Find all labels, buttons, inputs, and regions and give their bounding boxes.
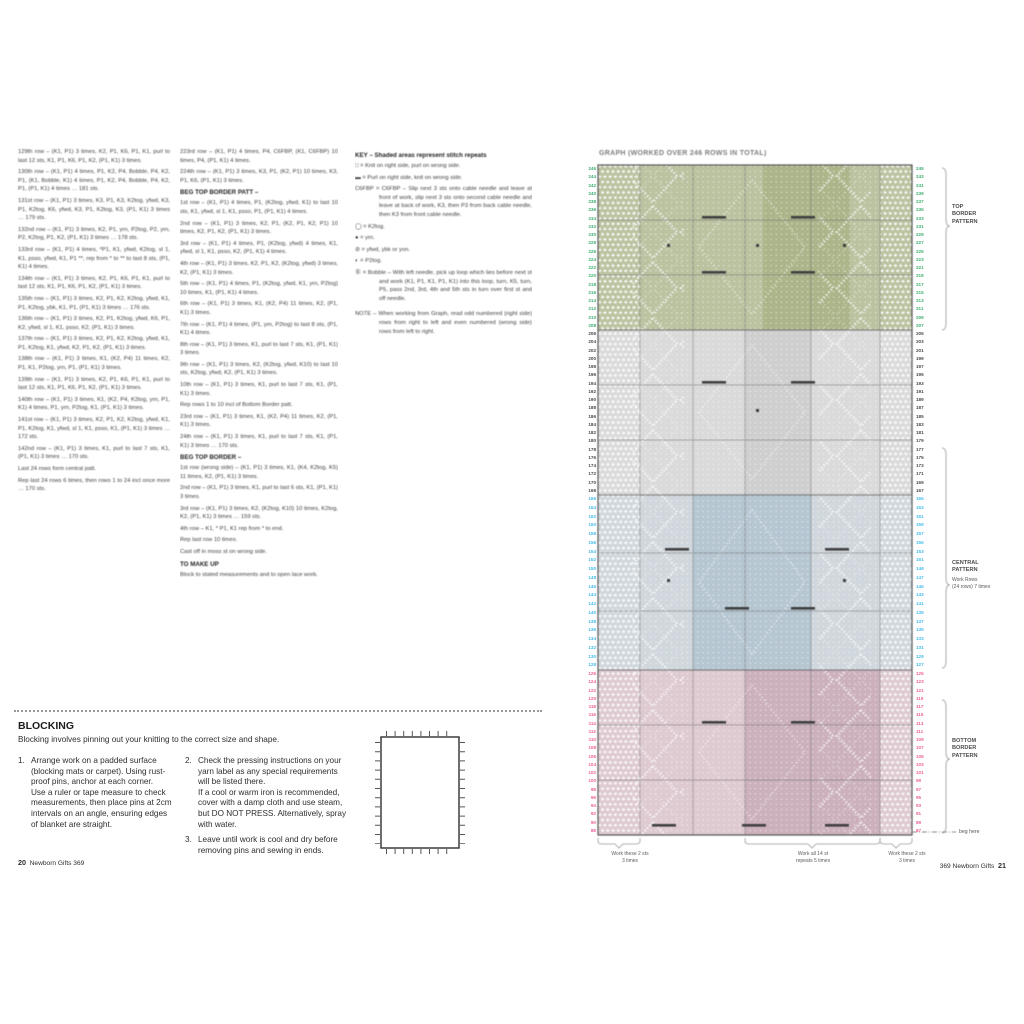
text-line: 140th row – (K1, P1) 3 times, K1, (K2, P… (18, 396, 170, 413)
column2-rows-group1: 1st row – (K1, P1) 4 times, P1, (K2tog, … (180, 199, 338, 450)
section-braces (942, 168, 950, 833)
text-line: 4th row – (K1, P1) 3 times, K2, P1, K2, … (180, 260, 338, 277)
text-line: 1st row – (K1, P1) 4 times, P1, (K2tog, … (180, 199, 338, 216)
blocking-step-3: 3. Leave until work is cool and dry befo… (185, 835, 348, 856)
heading-to-make-up: TO MAKE UP (180, 560, 338, 569)
step-text: Arrange work on a padded surface (blocki… (31, 756, 176, 830)
lattice-motif-right (819, 165, 871, 835)
brace-left-sts (598, 838, 640, 848)
text-line: ◐ = P2tog. (355, 257, 532, 266)
text-line: 224th row – (K1, P1) 3 times, K3, P1, (K… (180, 168, 338, 185)
step-number: 2. (185, 756, 198, 830)
text-line: ● = yrn. (355, 234, 532, 243)
label-bottom-border-pattern: BOTTOM BORDER PATTERN (952, 738, 1012, 760)
column2-rows-group2: 1st row (wrong side) – (K1, P1) 3 times,… (180, 464, 338, 556)
blocking-heading: BLOCKING (18, 720, 74, 732)
text-line: 137th row – (K1, P1) 3 times, K2, P1, K2… (18, 335, 170, 352)
step-number: 1. (18, 756, 31, 830)
row-numbers-left-central: 166 164 162 160 158 156 154 152 150 148 … (574, 495, 596, 670)
row-numbers-right-top: 245 243 241 239 237 235 233 231 229 227 … (916, 165, 940, 330)
step-text: Check the pressing instructions on your … (198, 756, 348, 830)
text-line: 3rd row – (K1, P1) 4 times, P1, (K2tog, … (180, 240, 338, 257)
text-line: Cast off in moss st on wrong side. (180, 548, 338, 557)
text-line: Ⓑ = Bobble – With left needle, pick up l… (355, 269, 532, 303)
brace-top-border (942, 168, 950, 330)
blocking-step-1: 1. Arrange work on a padded surface (blo… (18, 756, 176, 830)
brace-bottom-border (942, 700, 950, 833)
row-numbers-right-central: 165 163 161 159 157 155 153 151 149 147 … (916, 495, 940, 670)
text-line: 134th row – (K1, P1) 3 times, K2, P1, K6… (18, 275, 170, 292)
text-line: □ = Knit on right side, purl on wrong si… (355, 162, 532, 171)
book-title-left: Newborn Gifts 369 (30, 860, 85, 867)
text-line: 142nd row – (K1, P1) 3 times, K1, purl t… (18, 445, 170, 462)
footer-left: 20 Newborn Gifts 369 (18, 858, 84, 867)
text-line: 133rd row – (K1, P1) 4 times, *P1, K1, y… (18, 246, 170, 272)
heading-beg-top-border-patt: BEG TOP BORDER PATT – (180, 188, 338, 197)
blocking-diagram (372, 730, 468, 860)
text-line: 130th row – (K1, P1) 4 times, P1, K2, P4… (18, 168, 170, 194)
column2-pre-rows: 223rd row – (K1, P1) 4 times, P4, C6FBP,… (180, 148, 338, 185)
text-line: 8th row – (K1, P1) 3 times, K1, purl to … (180, 341, 338, 358)
text-line: ⊘ = yfwd, ybk or yon. (355, 246, 532, 255)
key-items: □ = Knit on right side, purl on wrong si… (355, 162, 532, 303)
text-line: 138th row – (K1, P1) 3 times, K1, (K2, P… (18, 355, 170, 372)
text-line: Rep last 24 rows 6 times, then rows 1 to… (18, 477, 170, 494)
text-line: 5th row – (K1, P1) 4 times, P1, (K2tog, … (180, 280, 338, 297)
dotted-divider (14, 710, 542, 712)
text-line: 131st row – (K1, P1) 3 times, K3, P1, K3… (18, 197, 170, 223)
text-line: 9th row – (K1, P1) 3 times, K2, (K2tog, … (180, 361, 338, 378)
knitting-chart (575, 148, 1024, 880)
text-line: 223rd row – (K1, P1) 4 times, P4, C6FBP,… (180, 148, 338, 165)
blocking-steps-left: 1. Arrange work on a padded surface (blo… (18, 756, 176, 835)
text-line: 6th row – (K1, P1) 3 times, K1, (K2, P4)… (180, 300, 338, 317)
row-numbers-left-bottom: 126 124 122 120 118 116 114 112 110 108 … (574, 670, 596, 835)
label-central-pattern-sub: Work Rows (24 rows) 7 times (952, 577, 1014, 590)
label-top-border-pattern: TOP BORDER PATTERN (952, 204, 1012, 226)
brace-centre-repeats (745, 838, 880, 848)
label-work-centre-repeats: Work all 14 st repeats 5 times (768, 851, 858, 864)
blocking-steps-right: 2. Check the pressing instructions on yo… (185, 756, 348, 861)
two-page-spread: 129th row – (K1, P1) 3 times, K2, P1, K6… (0, 0, 1024, 1024)
text-line: Last 24 rows form central patt. (18, 465, 170, 474)
label-central-pattern: CENTRAL PATTERN (952, 560, 1012, 575)
text-line: 10th row – (K1, P1) 3 times, K1, purl to… (180, 381, 338, 398)
row-numbers-left: 246 244 242 240 238 236 234 232 230 228 … (574, 165, 596, 835)
text-line: 7th row – (K1, P1) 4 times, (P1, yrn, P2… (180, 321, 338, 338)
text-line: 132nd row – (K1, P1) 3 times, K2, P1, yr… (18, 226, 170, 243)
instructions-column-1: 129th row – (K1, P1) 3 times, K2, P1, K6… (18, 148, 170, 704)
text-line: 139th row – (K1, P1) 3 times, K2, P1, K6… (18, 376, 170, 393)
step-text: Leave until work is cool and dry before … (198, 835, 348, 856)
text-line: 2nd row – (K1, P1) 3 times, K1, purl to … (180, 484, 338, 501)
row-numbers-right: 245 243 241 239 237 235 233 231 229 227 … (916, 165, 940, 835)
text-line: 3rd row – (K1, P1) 3 times, K2, (K2tog, … (180, 505, 338, 522)
text-line: 4th row – K1, * P1, K1 rep from * to end… (180, 525, 338, 534)
row-numbers-right-mid: 205 203 201 199 197 195 193 191 189 187 … (916, 330, 940, 495)
text-line: ◯ = K2tog. (355, 223, 532, 232)
key-column: KEY – Shaded areas represent stitch repe… (355, 148, 532, 704)
make-up-text: Block to stated measurements and to open… (180, 571, 338, 580)
page-number-left: 20 (18, 858, 26, 867)
beg-here-label: beg here (959, 829, 979, 835)
brace-central (942, 448, 950, 668)
repeat-braces (598, 838, 912, 848)
text-line: 1st row (wrong side) – (K1, P1) 3 times,… (180, 464, 338, 481)
row-numbers-right-bottom: 125 123 121 119 117 115 113 111 109 107 … (916, 670, 940, 835)
text-line: Rep last row 10 times. (180, 536, 338, 545)
heading-beg-top-border: BEG TOP BORDER – (180, 453, 338, 462)
page-number-right: 21 (998, 861, 1006, 870)
row-numbers-left-mid: 206 204 202 200 198 196 194 192 190 188 … (574, 330, 596, 495)
footer-right: 369 Newborn Gifts 21 (940, 861, 1006, 870)
text-line: 24th row – (K1, P1) 3 times, K1, purl to… (180, 433, 338, 450)
text-line: Rep rows 1 to 10 incl of Bottom Border p… (180, 401, 338, 410)
book-title-right: 369 Newborn Gifts (940, 863, 995, 870)
text-line: 23rd row – (K1, P1) 3 times, K1, (K2, P4… (180, 413, 338, 430)
text-line: 136th row – (K1, P1) 3 times, K2, P1, K2… (18, 315, 170, 332)
text-line: C6FBP = C6FBP – Slip next 3 sts onto cab… (355, 185, 532, 219)
moss-edge-right (880, 165, 912, 835)
step-number: 3. (185, 835, 198, 856)
key-note: NOTE – When working from Graph, read odd… (355, 310, 532, 336)
label-work-right-sts: Work these 2 sts 3 times (862, 851, 952, 864)
text-line: 129th row – (K1, P1) 3 times, K2, P1, K6… (18, 148, 170, 165)
blanket-outline (381, 737, 459, 848)
label-work-left-sts: Work these 2 sts 3 times (585, 851, 675, 864)
text-line: ▬ = Purl on right side, knit on wrong si… (355, 174, 532, 183)
blocking-step-2: 2. Check the pressing instructions on yo… (185, 756, 348, 830)
instructions-column-2: 223rd row – (K1, P1) 4 times, P4, C6FBP,… (180, 148, 338, 704)
text-line: 135th row – (K1, P1) 3 times, K2, P1, K2… (18, 295, 170, 312)
brace-right-sts (880, 838, 912, 848)
key-heading: KEY – Shaded areas represent stitch repe… (355, 151, 532, 160)
text-line: 2nd row – (K1, P1) 3 times, K2, P1, (K2,… (180, 220, 338, 237)
text-line: 141st row – (K1, P1) 3 times, K2, P1, K2… (18, 416, 170, 442)
row-numbers-left-top: 246 244 242 240 238 236 234 232 230 228 … (574, 165, 596, 330)
